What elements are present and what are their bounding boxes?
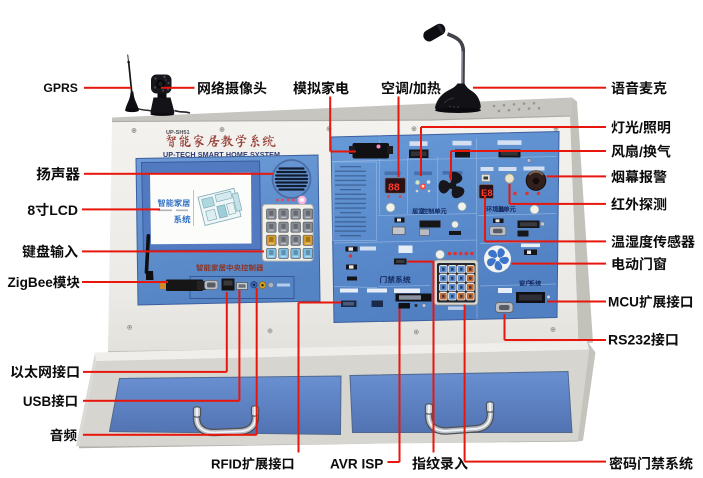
svg-text:AVR ISP: AVR ISP — [330, 457, 383, 472]
svg-text:RS232: RS232 — [608, 332, 651, 348]
svg-text:UP-SH51: UP-SH51 — [166, 130, 190, 136]
svg-text:单元: 单元 — [503, 206, 516, 214]
svg-text:/: / — [639, 143, 643, 159]
svg-text:RFID: RFID — [211, 457, 242, 472]
svg-text:USB: USB — [23, 394, 52, 409]
svg-text:/: / — [409, 80, 413, 96]
svg-text:88: 88 — [388, 182, 400, 194]
svg-text:LCD: LCD — [49, 202, 78, 218]
svg-text:E8: E8 — [481, 188, 493, 199]
svg-text:/: / — [639, 119, 643, 135]
svg-text:单元: 单元 — [434, 208, 447, 216]
svg-text:GPRS: GPRS — [43, 81, 78, 95]
svg-text:MCU: MCU — [608, 295, 639, 310]
svg-text:8: 8 — [27, 202, 35, 218]
svg-text:ZigBee: ZigBee — [8, 275, 54, 290]
